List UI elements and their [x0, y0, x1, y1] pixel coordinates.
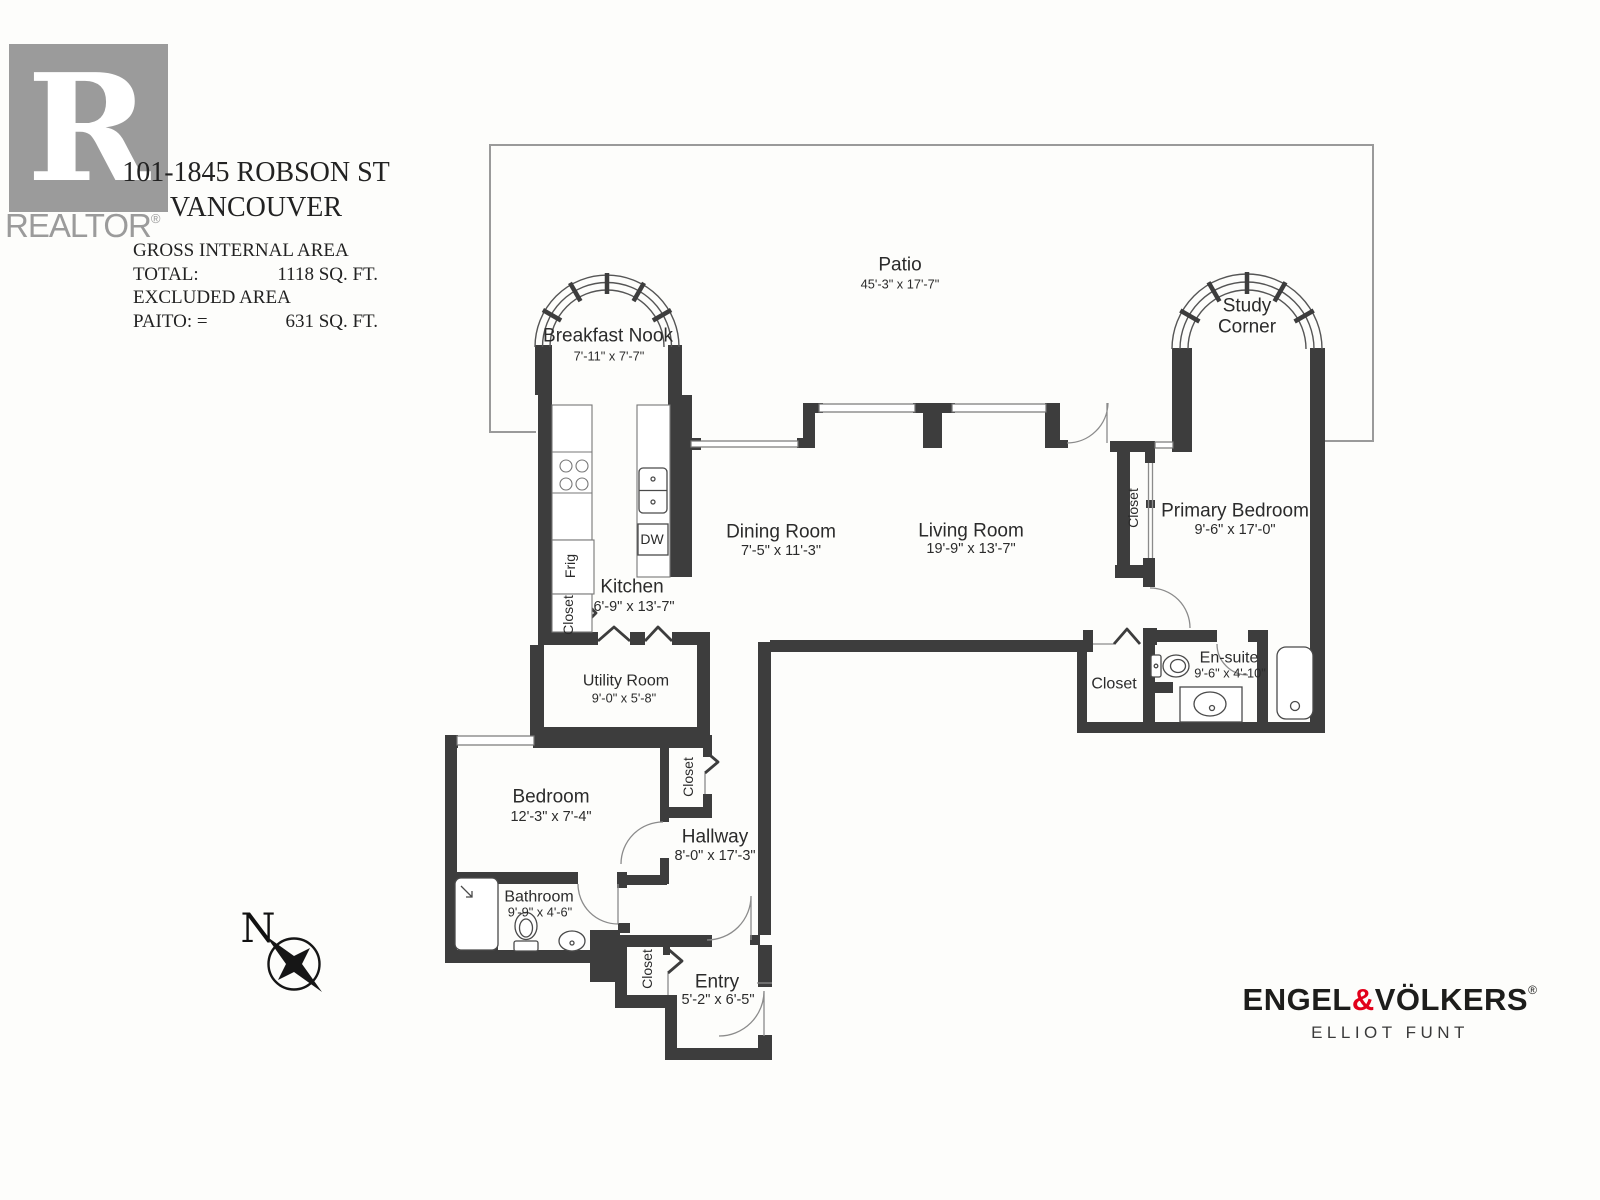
compass-needle: [266, 936, 322, 992]
brand-volkers: VÖLKERS: [1375, 982, 1528, 1017]
label-bathroom-name: Bathroom: [504, 889, 573, 906]
stove-burner: [560, 478, 572, 490]
label-dishwasher: DW: [640, 531, 664, 547]
ensuite-basin: [1194, 692, 1226, 716]
bedroom-door-arc: [621, 822, 663, 864]
dining-low-window: [691, 441, 798, 447]
label-breakfast-name: Breakfast Nook: [543, 326, 673, 347]
hallway-entry-door-arc: [707, 896, 751, 940]
label-living-name: Living Room: [918, 521, 1024, 542]
label-primary-dims: 9'-6" x 17'-0": [1194, 522, 1275, 538]
brand-registered-mark: ®: [1528, 983, 1537, 997]
label-bedroom-name: Bedroom: [512, 787, 589, 808]
bedroom-window: [457, 736, 534, 745]
label-dining-dims: 7'-5" x 11'-3": [741, 543, 821, 559]
compass-north-label: N: [241, 906, 276, 952]
compass-rose: N: [241, 906, 323, 992]
living-window-2: [952, 404, 1046, 412]
engel-volkers-brand: ENGEL&VÖLKERS® ELLIOT FUNT: [1240, 982, 1540, 1043]
label-entry-name: Entry: [695, 972, 740, 993]
living-closet-slider: [1149, 463, 1153, 558]
label-primary-name: Primary Bedroom: [1161, 501, 1309, 522]
label-kitchen-name: Kitchen: [600, 577, 663, 598]
stove-burner: [576, 460, 588, 472]
label-kitchen-dims: 6'-9" x 13'-7": [593, 599, 674, 615]
label-patio-name: Patio: [878, 255, 921, 276]
label-entry-dims: 5'-2" x 6'-5": [681, 992, 754, 1008]
brand-subtitle: ELLIOT FUNT: [1240, 1023, 1540, 1043]
label-ensuite-dims: 9'-6" x 4'-10": [1194, 666, 1266, 681]
label-closet-kitchen: Closet: [560, 595, 576, 635]
label-fridge: Frig: [562, 554, 578, 578]
closet-side-window: [1155, 442, 1173, 448]
shower: [455, 878, 498, 950]
floorplan-page: R REALTOR® 101-1845 ROBSON ST VANCOUVER …: [0, 0, 1600, 1200]
label-closet-living: Closet: [1125, 488, 1141, 528]
label-hallway-name: Hallway: [682, 827, 749, 848]
closet-room-opening-chevron: [1114, 629, 1140, 644]
label-hallway-dims: 8'-0" x 17'-3": [674, 848, 755, 864]
label-closet-bedroom: Closet: [680, 757, 696, 797]
label-closet-entry: Closet: [639, 949, 655, 989]
bathtub-drain: [1291, 702, 1300, 711]
label-ensuite-name: En-suite: [1200, 650, 1259, 667]
kitchen-counter: [552, 405, 592, 540]
label-breakfast-dims: 7'-11" x 7'-7": [574, 349, 645, 364]
bathroom-door-arc: [578, 884, 618, 924]
brand-ampersand: &: [1352, 982, 1375, 1017]
utility-opening-chevron-1: [598, 627, 630, 641]
stove-burner: [560, 460, 572, 472]
stove-burner: [576, 478, 588, 490]
label-dining-name: Dining Room: [726, 522, 836, 543]
label-bedroom-dims: 12'-3" x 7'-4": [510, 809, 591, 825]
label-utility-dims: 9'-0" x 5'-8": [592, 691, 656, 706]
label-patio-dims: 45'-3" x 17'-7": [861, 277, 940, 292]
primary-bedroom-door-arc: [1150, 588, 1190, 628]
toilet-tank: [514, 941, 538, 951]
utility-opening-chevron-2: [645, 627, 672, 641]
label-bathroom-dims: 9'-9" x 4'-6": [508, 905, 572, 920]
living-patio-door-arc: [1067, 403, 1108, 443]
label-living-dims: 19'-9" x 13'-7": [926, 541, 1015, 557]
living-window-1: [819, 404, 915, 412]
label-study-line2: Corner: [1218, 317, 1277, 338]
patio-outline: [490, 145, 1373, 441]
brand-engel: ENGEL: [1243, 982, 1352, 1017]
entry-closet-bifold: [668, 949, 682, 973]
label-study-line1: Study: [1223, 296, 1272, 317]
brand-line1: ENGEL&VÖLKERS®: [1240, 982, 1540, 1018]
label-utility-name: Utility Room: [583, 673, 669, 690]
label-closet-room: Closet: [1091, 676, 1137, 693]
